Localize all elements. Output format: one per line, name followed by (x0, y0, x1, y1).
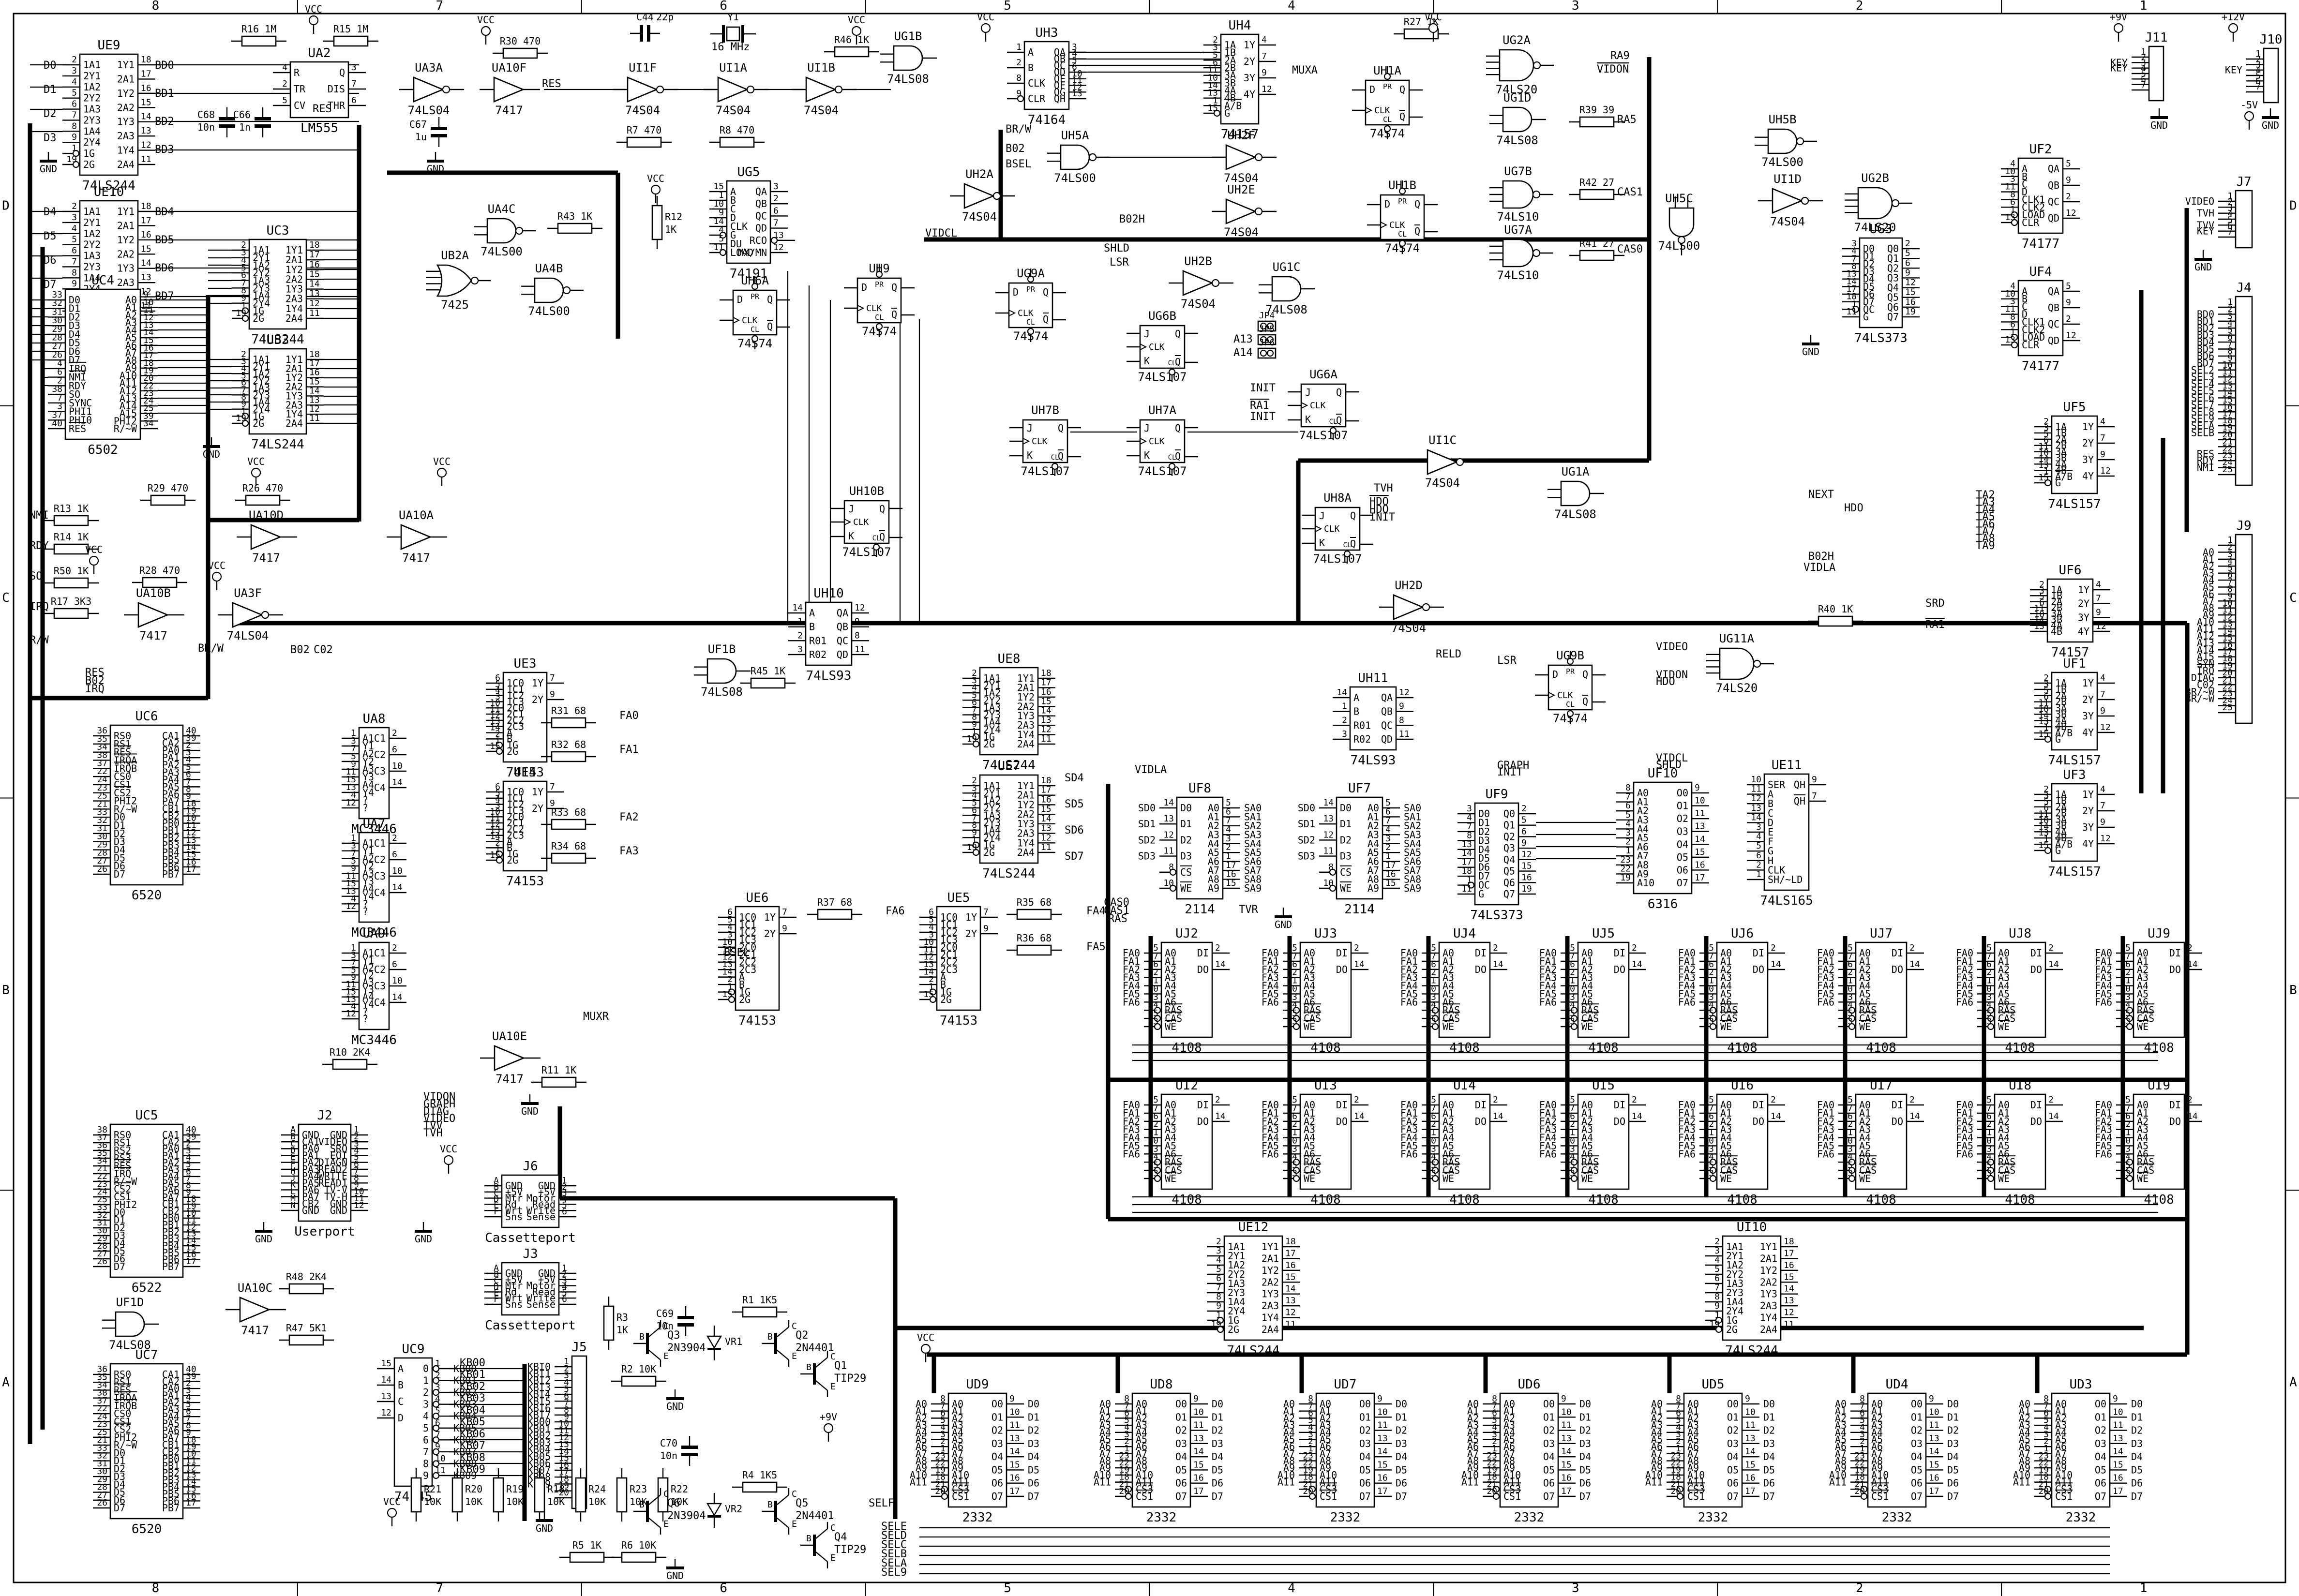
svg-text:3: 3 (1342, 729, 1347, 739)
svg-text:19: 19 (1620, 873, 1631, 883)
svg-text:2Y: 2Y (1244, 56, 1255, 67)
svg-text:J: J (1319, 510, 1325, 522)
svg-text:15: 15 (381, 1358, 391, 1369)
svg-text:15: 15 (923, 989, 934, 999)
svg-text:10: 10 (392, 761, 403, 771)
svg-text:1Y1: 1Y1 (1262, 1241, 1279, 1253)
svg-text:WE: WE (1180, 882, 1192, 894)
svg-text:TR: TR (294, 83, 306, 95)
svg-text:O6: O6 (1543, 1477, 1555, 1489)
svg-text:CLK: CLK (866, 303, 882, 313)
svg-text:11: 11 (855, 644, 865, 655)
svg-text:2A4: 2A4 (1760, 1324, 1777, 1335)
svg-text:9: 9 (1812, 775, 1817, 785)
svg-text:19: 19 (66, 154, 77, 164)
svg-text:B: B (809, 621, 815, 633)
svg-text:D2: D2 (1396, 1425, 1407, 1436)
svg-text:4: 4 (1288, 1581, 1295, 1596)
svg-text:13: 13 (1009, 1433, 1020, 1444)
svg-text:GND: GND (302, 1205, 319, 1216)
svg-text:1Y3: 1Y3 (117, 263, 135, 274)
svg-text:2: 2 (1714, 1237, 1720, 1247)
svg-text:14: 14 (1041, 706, 1052, 716)
svg-text:11: 11 (1399, 729, 1410, 739)
svg-text:UH8A: UH8A (1323, 491, 1352, 505)
svg-text:DO: DO (1753, 1116, 1764, 1127)
svg-text:2: 2 (1493, 1095, 1498, 1105)
net-label: KB00 (460, 1357, 485, 1369)
svg-text:2: 2 (1756, 860, 1761, 870)
svg-text:12: 12 (1163, 830, 1174, 840)
svg-text:J5: J5 (571, 1340, 586, 1355)
svg-text:13: 13 (2034, 621, 2044, 631)
svg-text:UG7A: UG7A (1504, 223, 1532, 237)
svg-text:13: 13 (1072, 89, 1082, 99)
svg-text:9: 9 (782, 924, 787, 934)
svg-text:14: 14 (381, 1375, 391, 1385)
svg-text:CL: CL (872, 535, 881, 542)
net-label: CAS0 (1617, 243, 1643, 255)
svg-text:O7: O7 (2095, 1491, 2106, 1502)
svg-text:CS1: CS1 (1503, 1491, 1521, 1502)
svg-text:16: 16 (1521, 872, 1532, 882)
svg-text:20: 20 (1119, 1486, 1129, 1496)
svg-text:D0: D0 (1947, 1398, 1959, 1410)
svg-text:14: 14 (141, 112, 151, 122)
svg-text:13: 13 (2005, 335, 2015, 345)
svg-text:17: 17 (1377, 1486, 1388, 1496)
svg-text:9: 9 (1193, 1394, 1199, 1404)
svg-text:UI6: UI6 (1731, 1078, 1754, 1093)
svg-text:A11: A11 (1277, 1477, 1295, 1488)
svg-text:2: 2 (2187, 1095, 2193, 1105)
svg-text:1Y: 1Y (532, 786, 543, 798)
svg-text:74LS00: 74LS00 (1054, 171, 1096, 185)
svg-text:CS1: CS1 (1136, 1491, 1153, 1502)
svg-text:14: 14 (2048, 959, 2059, 970)
svg-text:A: A (809, 607, 815, 619)
svg-text:17: 17 (1784, 1248, 1794, 1258)
svg-text:O1: O1 (2095, 1411, 2106, 1423)
svg-text:4108: 4108 (1310, 1041, 1341, 1055)
svg-text:3Y: 3Y (2078, 612, 2089, 623)
svg-text:16: 16 (1905, 297, 1916, 307)
svg-text:CS: CS (1340, 866, 1352, 878)
svg-text:VIDEO: VIDEO (2185, 195, 2214, 207)
svg-text:7: 7 (1812, 791, 1817, 801)
svg-text:J: J (1305, 387, 1311, 398)
svg-text:3: 3 (72, 66, 77, 76)
svg-text:R41 27: R41 27 (1579, 238, 1614, 249)
svg-text:9: 9 (1714, 1301, 1720, 1311)
svg-text:19: 19 (236, 308, 246, 318)
svg-text:15: 15 (1784, 1272, 1794, 1282)
svg-text:74LS20: 74LS20 (1716, 681, 1758, 695)
net-label: INIT (1250, 411, 1276, 423)
svg-text:?: ? (362, 906, 368, 917)
svg-text:D2: D2 (1763, 1425, 1775, 1436)
svg-text:Q: Q (1175, 422, 1181, 434)
svg-text:SD3: SD3 (1298, 850, 1315, 862)
svg-text:9: 9 (550, 689, 555, 700)
svg-text:A: A (1353, 692, 1359, 703)
net-label: D7 (44, 279, 57, 291)
svg-text:UA10E: UA10E (492, 1029, 527, 1043)
svg-text:CLK: CLK (853, 517, 869, 527)
svg-text:12: 12 (1399, 687, 1410, 698)
svg-text:UG2A: UG2A (1503, 33, 1531, 47)
svg-text:26: 26 (97, 864, 107, 874)
svg-text:UJ2: UJ2 (1175, 926, 1198, 941)
svg-text:3: 3 (1572, 0, 1579, 13)
svg-text:1Y3: 1Y3 (1262, 1288, 1279, 1300)
svg-text:UA10D: UA10D (249, 508, 284, 522)
svg-text:UD8: UD8 (1150, 1377, 1173, 1392)
svg-text:1: 1 (797, 617, 803, 627)
svg-text:2G: 2G (1228, 1324, 1239, 1335)
svg-text:CLK: CLK (1028, 77, 1045, 89)
svg-text:11: 11 (1041, 842, 1052, 852)
svg-text:6522: 6522 (132, 1281, 162, 1295)
svg-text:2332: 2332 (1698, 1510, 1728, 1525)
svg-text:BR/~W: BR/~W (2185, 693, 2215, 704)
svg-text:8: 8 (855, 630, 860, 641)
svg-text:UD4: UD4 (1886, 1377, 1908, 1392)
svg-text:2A4: 2A4 (1017, 847, 1035, 858)
svg-text:CS1: CS1 (1687, 1491, 1705, 1502)
svg-text:Q0: Q0 (1503, 808, 1515, 820)
svg-text:D5: D5 (1396, 1464, 1407, 1476)
svg-text:UI2: UI2 (1175, 1078, 1198, 1093)
svg-text:17: 17 (1695, 873, 1705, 883)
svg-text:O5: O5 (1175, 1464, 1187, 1476)
svg-text:4: 4 (1714, 1255, 1720, 1265)
svg-text:SD2: SD2 (1138, 834, 1156, 846)
svg-text:26: 26 (97, 1256, 107, 1267)
svg-text:15: 15 (1377, 1460, 1388, 1470)
svg-text:FA6: FA6 (1262, 1148, 1279, 1160)
svg-text:9: 9 (2100, 449, 2105, 460)
svg-text:11: 11 (1561, 1420, 1572, 1431)
svg-text:17: 17 (1929, 1486, 1939, 1496)
svg-text:7425: 7425 (441, 298, 469, 312)
svg-text:LM555: LM555 (301, 121, 338, 135)
svg-text:6: 6 (392, 745, 397, 755)
svg-text:D: D (2, 198, 10, 213)
svg-text:O3: O3 (992, 1438, 1003, 1449)
svg-text:C: C (2289, 591, 2297, 605)
svg-text:20: 20 (1303, 1486, 1313, 1496)
svg-text:4Y: 4Y (1244, 89, 1255, 100)
svg-text:2Y1: 2Y1 (83, 70, 101, 82)
svg-text:A11: A11 (1829, 1477, 1847, 1488)
svg-text:UE4: UE4 (514, 765, 537, 780)
svg-text:R50 1K: R50 1K (54, 565, 89, 577)
svg-text:2A3: 2A3 (1262, 1300, 1279, 1312)
svg-text:9: 9 (855, 617, 860, 627)
svg-text:14: 14 (2048, 1111, 2059, 1121)
svg-text:R39 39: R39 39 (1579, 104, 1614, 116)
svg-text:3: 3 (1292, 1168, 1297, 1178)
svg-text:4108: 4108 (2144, 1041, 2174, 1055)
svg-text:6: 6 (720, 1581, 727, 1596)
svg-text:4108: 4108 (2144, 1193, 2174, 1207)
svg-text:QB: QB (837, 621, 848, 633)
net-label: A13 (1233, 333, 1253, 345)
svg-text:15: 15 (1226, 878, 1236, 888)
svg-text:18: 18 (309, 349, 320, 359)
svg-text:Q: Q (767, 294, 773, 305)
svg-text:5: 5 (282, 95, 287, 105)
svg-text:14: 14 (1745, 1447, 1756, 1457)
svg-text:D: D (1552, 669, 1558, 680)
svg-text:13: 13 (1377, 1433, 1388, 1444)
svg-text:PR: PR (751, 292, 760, 301)
svg-text:O3: O3 (1175, 1438, 1187, 1449)
net-label: MUXA (1292, 64, 1318, 76)
svg-text:D7: D7 (1947, 1491, 1959, 1502)
svg-text:WE: WE (1859, 1021, 1871, 1032)
svg-text:UI3: UI3 (1314, 1078, 1337, 1093)
svg-text:2A2: 2A2 (1262, 1276, 1279, 1288)
svg-text:FA6: FA6 (1678, 996, 1696, 1008)
svg-text:D: D (737, 294, 743, 305)
svg-text:SA9: SA9 (1404, 882, 1421, 894)
svg-text:D3: D3 (2131, 1438, 2143, 1449)
net-label: BD2 (155, 116, 174, 128)
svg-text:2A2: 2A2 (117, 102, 135, 113)
svg-text:O6: O6 (1677, 864, 1688, 876)
svg-text:UB3: UB3 (267, 333, 289, 347)
svg-text:D7: D7 (114, 868, 125, 880)
svg-text:2332: 2332 (1882, 1510, 1912, 1525)
svg-text:1Y: 1Y (2082, 677, 2094, 689)
svg-text:UI7: UI7 (1870, 1078, 1893, 1093)
svg-text:12: 12 (1751, 793, 1761, 804)
svg-text:2A4: 2A4 (285, 418, 303, 429)
svg-text:O4: O4 (1911, 1451, 1923, 1462)
svg-text:17: 17 (309, 358, 320, 369)
svg-text:15: 15 (1695, 847, 1705, 857)
svg-text:D2: D2 (1028, 1425, 1039, 1436)
net-label: KB07 (460, 1440, 485, 1452)
svg-text:FA6: FA6 (2095, 996, 2112, 1008)
svg-text:UF2: UF2 (2029, 142, 2052, 157)
net-label: KB03 (460, 1392, 485, 1404)
svg-text:UF8: UF8 (1188, 781, 1211, 796)
svg-text:DI: DI (1475, 947, 1487, 959)
svg-text:C: C (2, 591, 10, 605)
svg-text:UG1A: UG1A (1562, 465, 1590, 478)
svg-text:14: 14 (1929, 1447, 1939, 1457)
net-label: NMI (30, 509, 49, 522)
svg-text:UI1B: UI1B (807, 61, 835, 75)
svg-text:0: 0 (423, 1363, 429, 1374)
svg-text:14: 14 (392, 992, 403, 1002)
svg-text:D: D (398, 1412, 404, 1424)
svg-text:16: 16 (1695, 860, 1705, 870)
svg-text:10: 10 (392, 976, 403, 986)
svg-text:D7: D7 (1396, 1491, 1407, 1502)
svg-text:74LS08: 74LS08 (887, 72, 929, 86)
schematic-sheet: 8877665544332211DDCCBBAAUE974LS24421A132… (0, 0, 2299, 1596)
svg-text:D2: D2 (1180, 834, 1192, 846)
svg-text:UF4: UF4 (2029, 265, 2052, 279)
svg-text:2: 2 (1905, 239, 1910, 249)
svg-text:O1: O1 (1911, 1411, 1923, 1423)
svg-text:74LS04: 74LS04 (227, 629, 269, 642)
svg-text:1Y4: 1Y4 (117, 145, 135, 156)
svg-text:74LS107: 74LS107 (842, 545, 891, 559)
svg-text:15: 15 (1929, 1460, 1939, 1470)
svg-text:CLK: CLK (1149, 436, 1165, 447)
svg-text:D2: D2 (1212, 1425, 1223, 1436)
svg-text:2332: 2332 (962, 1510, 993, 1525)
svg-text:D6: D6 (1396, 1477, 1407, 1489)
svg-text:74164: 74164 (1028, 113, 1066, 127)
svg-text:14: 14 (1695, 834, 1705, 844)
svg-text:17: 17 (1041, 677, 1052, 687)
svg-text:18: 18 (1285, 1237, 1296, 1247)
svg-text:D4: D4 (1396, 1451, 1407, 1462)
svg-text:6: 6 (72, 99, 77, 109)
svg-text:R: R (294, 67, 300, 78)
svg-text:Q: Q (1582, 696, 1588, 707)
svg-text:WE: WE (1859, 1173, 1871, 1184)
svg-text:F: F (494, 1294, 499, 1304)
svg-text:Q6: Q6 (1503, 877, 1515, 888)
svg-text:12: 12 (381, 1408, 391, 1418)
svg-text:13: 13 (309, 395, 320, 405)
svg-text:A11: A11 (910, 1477, 927, 1488)
svg-text:4: 4 (72, 224, 77, 234)
svg-text:C4: C4 (374, 887, 386, 898)
svg-text:PR: PR (1026, 285, 1036, 294)
svg-text:R16 1M: R16 1M (241, 23, 276, 35)
svg-text:2Y2: 2Y2 (83, 92, 101, 104)
svg-text:2Y: 2Y (2082, 694, 2094, 705)
svg-text:C1: C1 (374, 947, 386, 959)
svg-text:O1: O1 (1677, 800, 1688, 812)
svg-text:1: 1 (1756, 869, 1761, 880)
svg-text:O7: O7 (1175, 1491, 1187, 1502)
svg-text:UC3: UC3 (267, 224, 289, 238)
net-label: D1 (44, 84, 57, 96)
svg-text:WE: WE (1304, 1021, 1315, 1032)
svg-text:11: 11 (1377, 1420, 1388, 1431)
svg-text:12: 12 (2096, 621, 2106, 631)
svg-text:2A2: 2A2 (1760, 1276, 1777, 1288)
svg-text:UF5: UF5 (2063, 400, 2086, 415)
svg-text:5: 5 (435, 1406, 440, 1416)
svg-text:15: 15 (141, 244, 151, 254)
svg-text:2: 2 (1521, 804, 1527, 814)
svg-text:9: 9 (2100, 817, 2105, 827)
svg-text:7: 7 (72, 256, 77, 267)
svg-text:D: D (1013, 286, 1019, 298)
net-label: FA0 (619, 710, 639, 722)
svg-text:DO: DO (1614, 964, 1625, 975)
svg-text:B: B (2, 983, 10, 998)
svg-text:2: 2 (2066, 192, 2071, 202)
svg-text:2332: 2332 (1330, 1510, 1361, 1525)
svg-text:40: 40 (52, 418, 62, 429)
svg-text:UE11: UE11 (1772, 758, 1802, 773)
svg-text:CLK: CLK (1324, 524, 1340, 534)
svg-text:UI10: UI10 (1737, 1220, 1767, 1235)
svg-text:2: 2 (1632, 1095, 1637, 1105)
svg-text:1Y: 1Y (2082, 421, 2094, 433)
svg-text:16: 16 (309, 368, 320, 378)
svg-text:16: 16 (1784, 1260, 1794, 1270)
svg-text:2G: 2G (983, 847, 995, 858)
svg-text:19: 19 (966, 842, 977, 852)
svg-text:9: 9 (1695, 783, 1700, 793)
svg-text:O3: O3 (1543, 1438, 1555, 1449)
svg-text:5: 5 (2066, 159, 2071, 169)
svg-text:10: 10 (1323, 878, 1334, 888)
svg-text:14: 14 (1354, 959, 1365, 970)
net-label: TVH (1374, 482, 1393, 494)
svg-text:C2: C2 (374, 854, 386, 865)
svg-text:UJ8: UJ8 (2009, 926, 2031, 941)
svg-text:CL: CL (1383, 115, 1392, 124)
svg-text:12: 12 (141, 140, 151, 150)
svg-text:J: J (1144, 422, 1150, 434)
svg-text:2: 2 (423, 1387, 429, 1398)
svg-text:CS1: CS1 (1320, 1491, 1337, 1502)
svg-text:7: 7 (773, 218, 779, 228)
svg-text:DI: DI (2169, 947, 2181, 959)
svg-text:K: K (848, 530, 854, 542)
net-label: VIDCL (925, 227, 957, 239)
svg-text:D5: D5 (1763, 1464, 1775, 1476)
svg-text:7: 7 (436, 1581, 443, 1596)
svg-text:13: 13 (1323, 814, 1334, 824)
svg-text:C1: C1 (374, 837, 386, 849)
svg-text:25: 25 (2222, 702, 2233, 713)
svg-text:O7: O7 (1727, 1491, 1739, 1502)
svg-text:3: 3 (1986, 1168, 1992, 1178)
svg-text:QB: QB (2048, 179, 2059, 191)
svg-text:2: 2 (1354, 943, 1359, 953)
svg-text:3: 3 (1986, 1016, 1992, 1027)
svg-text:Q: Q (1175, 328, 1181, 340)
svg-text:2Y: 2Y (532, 694, 543, 705)
svg-text:7417: 7417 (495, 104, 523, 117)
svg-text:4108: 4108 (1866, 1041, 1896, 1055)
svg-text:O2: O2 (1175, 1425, 1187, 1436)
svg-text:B: B (1028, 62, 1034, 74)
svg-text:14: 14 (1163, 798, 1174, 808)
svg-text:3: 3 (1709, 1168, 1714, 1178)
svg-text:1Y: 1Y (2078, 584, 2089, 596)
svg-text:15: 15 (1041, 804, 1052, 814)
svg-text:Q7: Q7 (1887, 311, 1899, 323)
svg-text:D7: D7 (1579, 1491, 1591, 1502)
svg-text:D: D (1369, 84, 1375, 95)
svg-text:2: 2 (1856, 0, 1863, 13)
svg-text:PB7: PB7 (162, 1261, 180, 1272)
svg-text:6: 6 (562, 1294, 567, 1304)
svg-text:3: 3 (773, 181, 779, 192)
svg-text:QD: QD (837, 649, 848, 660)
svg-text:12: 12 (1323, 830, 1334, 840)
net-label: FA4 (1086, 905, 1106, 917)
svg-text:7: 7 (2100, 689, 2105, 700)
svg-text:D: D (1384, 198, 1390, 210)
svg-text:74LS93: 74LS93 (806, 669, 852, 683)
